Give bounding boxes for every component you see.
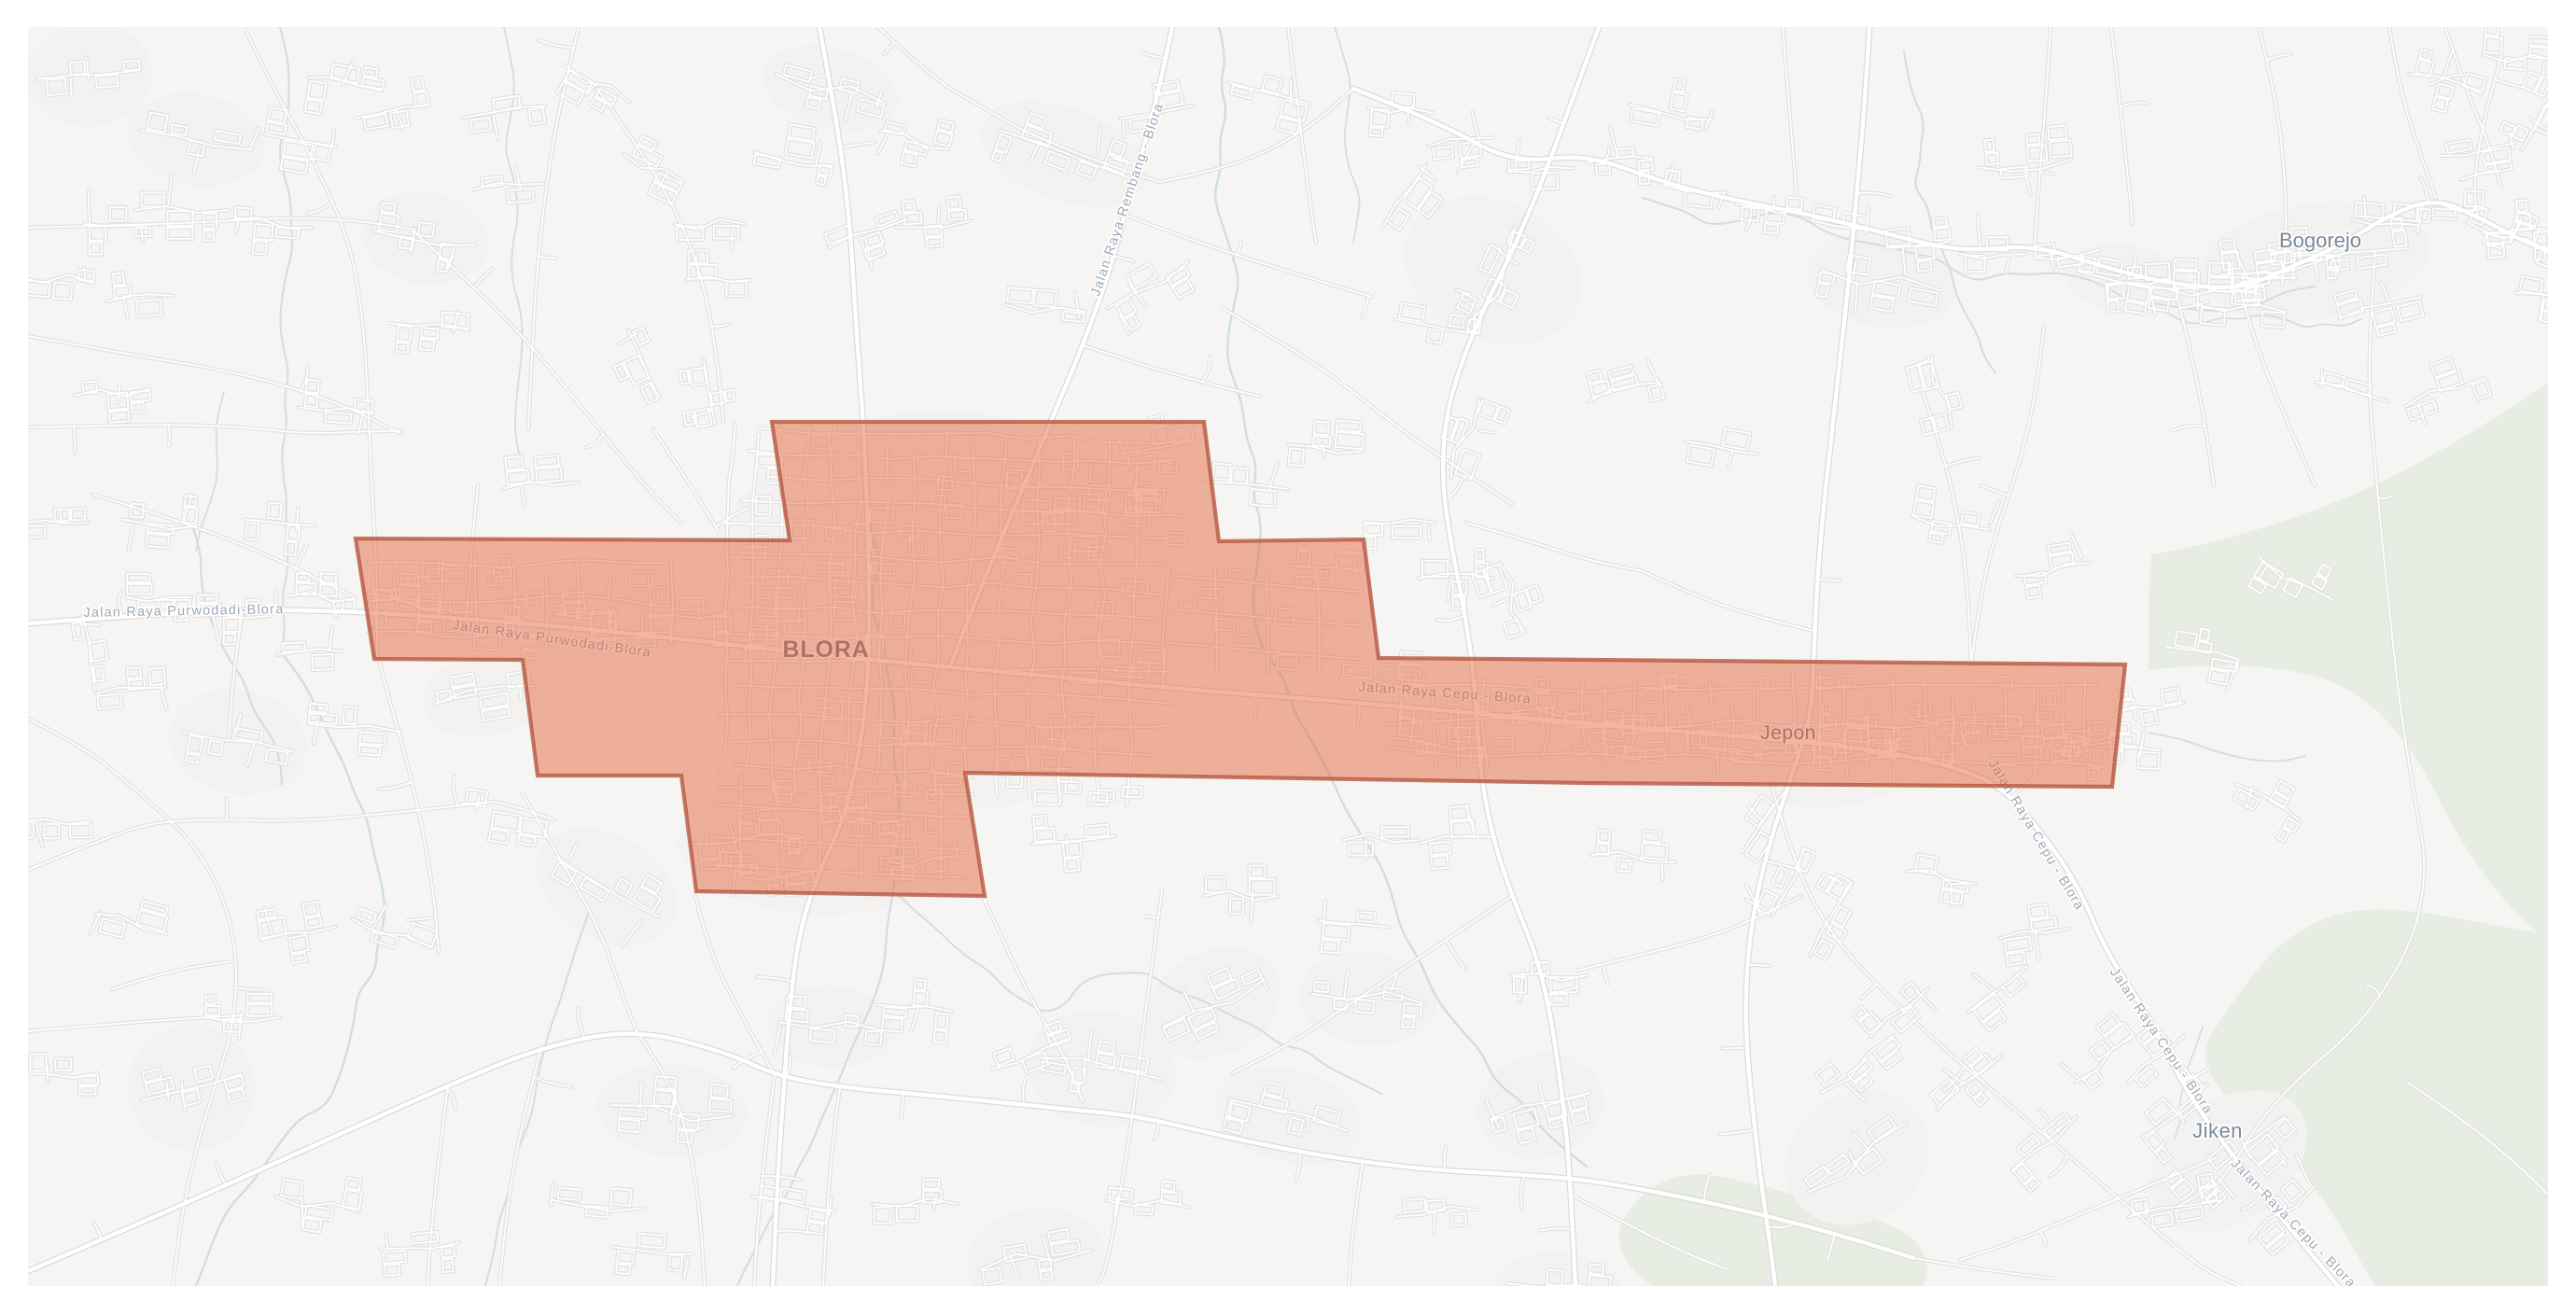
svg-text:Bogorejo: Bogorejo bbox=[2279, 229, 2361, 252]
svg-text:Jiken: Jiken bbox=[2192, 1119, 2243, 1142]
